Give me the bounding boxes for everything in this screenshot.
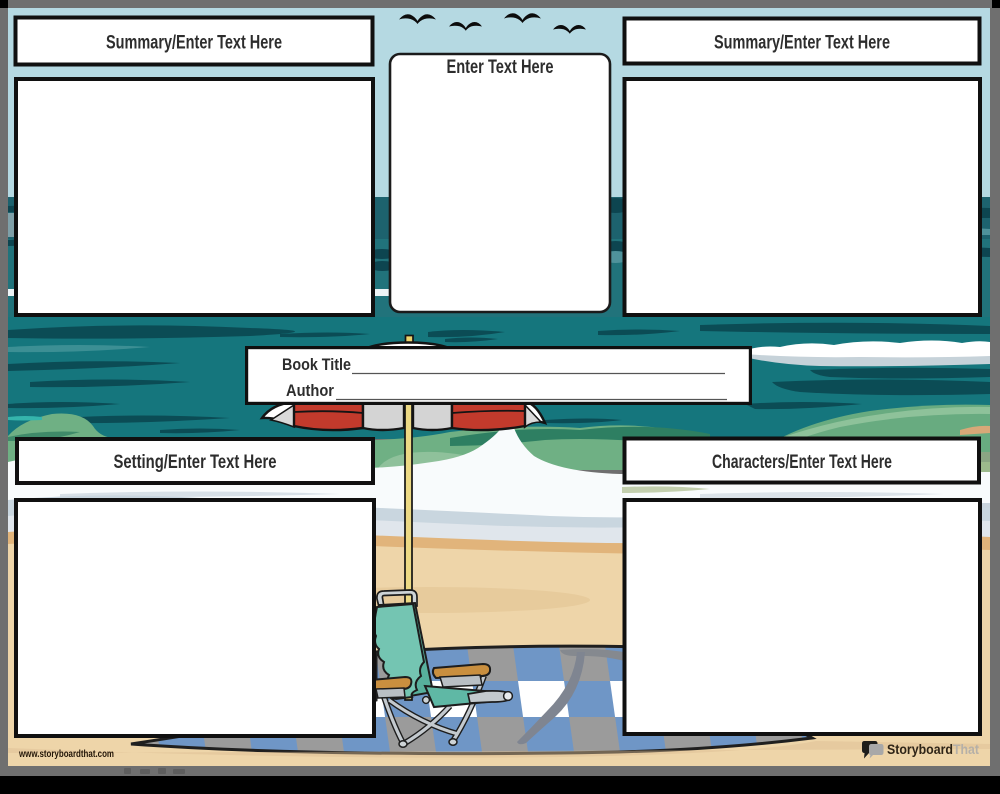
svg-text:Setting/Enter Text Here: Setting/Enter Text Here — [114, 452, 277, 473]
svg-text:Author: Author — [286, 381, 334, 400]
svg-text:Enter Text Here: Enter Text Here — [447, 57, 554, 78]
svg-text:Summary/Enter Text Here: Summary/Enter Text Here — [714, 33, 890, 54]
svg-text:www.storyboardthat.com: www.storyboardthat.com — [18, 749, 114, 760]
svg-text:That: That — [953, 741, 979, 757]
svg-text:Summary/Enter Text Here: Summary/Enter Text Here — [106, 33, 282, 54]
svg-text:Storyboard: Storyboard — [887, 741, 953, 757]
svg-text:Book Title: Book Title — [282, 355, 351, 374]
svg-text:Characters/Enter Text Here: Characters/Enter Text Here — [712, 452, 892, 473]
